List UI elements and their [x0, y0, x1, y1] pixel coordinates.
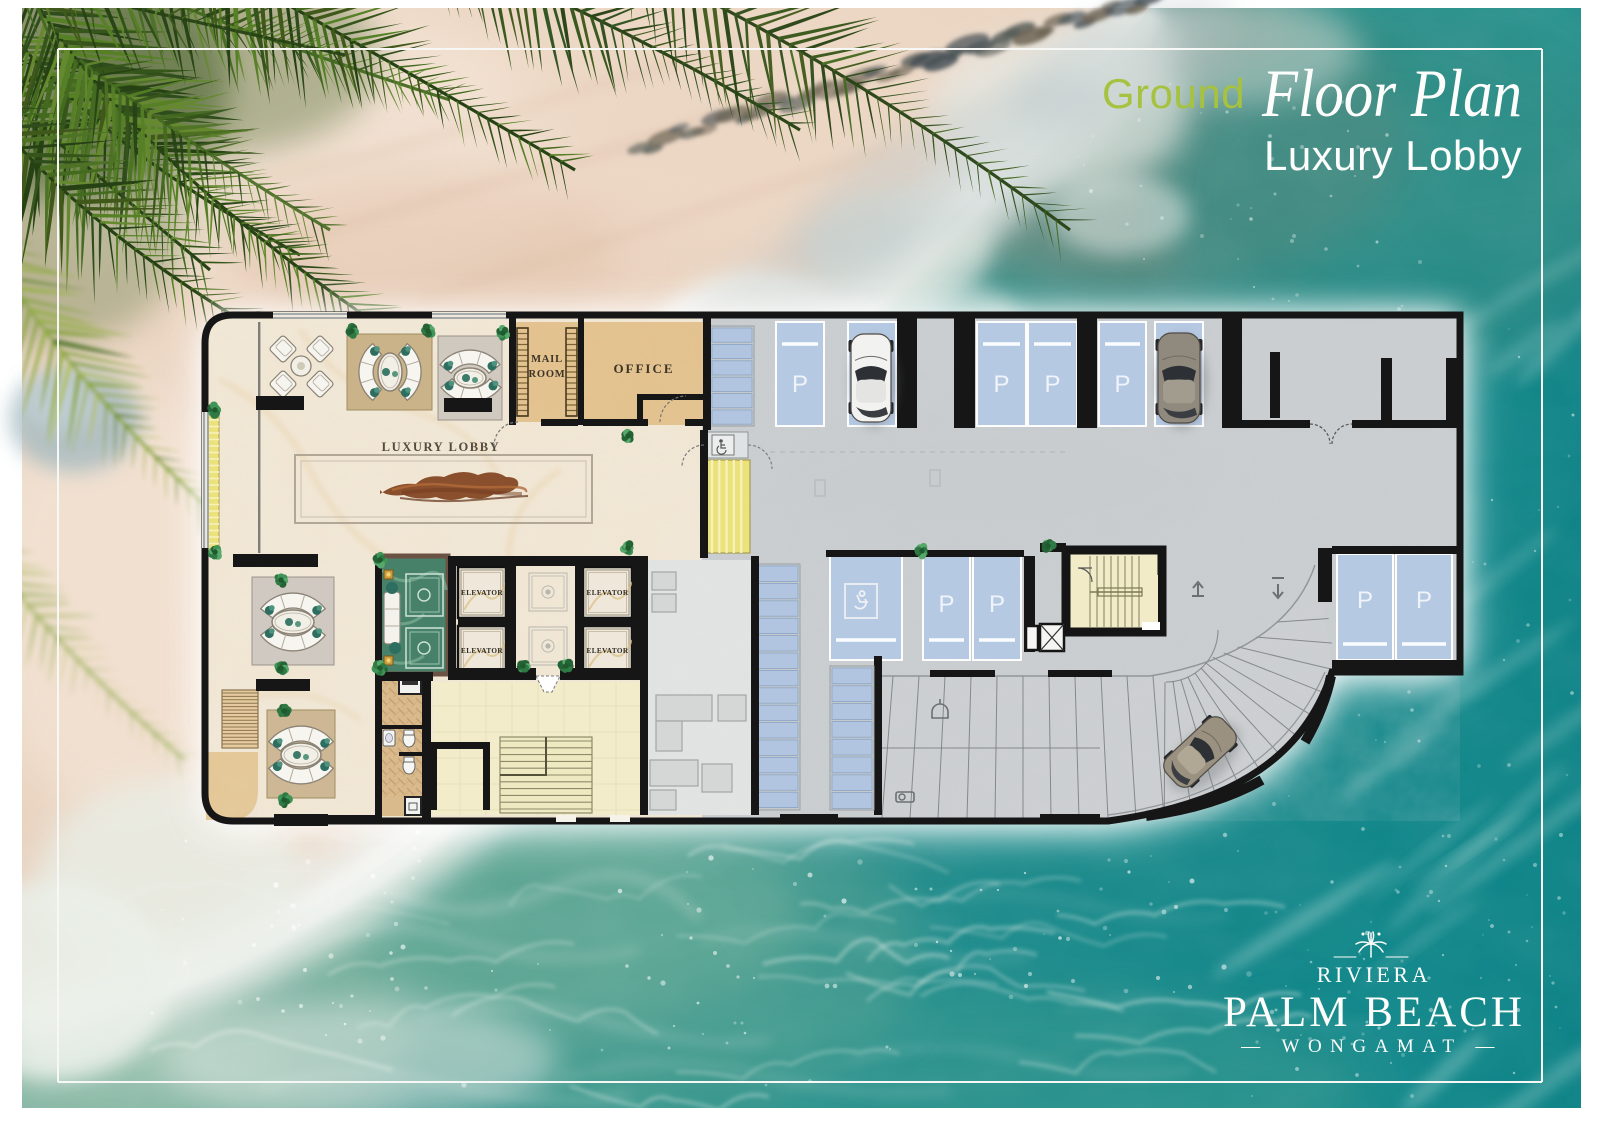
svg-text:PALM BEACH: PALM BEACH [1223, 989, 1525, 1036]
svg-text:P: P [993, 371, 1009, 398]
svg-text:ELEVATOR: ELEVATOR [461, 589, 503, 597]
svg-text:P: P [938, 591, 954, 618]
svg-text:P: P [989, 591, 1005, 618]
svg-text:P: P [792, 371, 808, 398]
svg-text:ELEVATOR: ELEVATOR [587, 589, 629, 597]
svg-text:Floor Plan: Floor Plan [1261, 55, 1522, 131]
svg-text:P: P [1416, 587, 1432, 614]
svg-text:ROOM: ROOM [528, 369, 565, 380]
svg-text:P: P [1044, 371, 1060, 398]
svg-text:Ground: Ground [1102, 70, 1245, 117]
svg-text:LUXURY LOBBY: LUXURY LOBBY [382, 440, 501, 454]
svg-text:ELEVATOR: ELEVATOR [587, 647, 629, 655]
svg-text:— WONGAMAT —: — WONGAMAT — [1240, 1036, 1503, 1057]
svg-text:P: P [1114, 371, 1130, 398]
svg-text:RIVIERA: RIVIERA [1317, 962, 1431, 987]
svg-text:Luxury Lobby: Luxury Lobby [1264, 132, 1522, 179]
svg-text:OFFICE: OFFICE [613, 361, 674, 376]
svg-text:P: P [1357, 587, 1373, 614]
svg-text:ELEVATOR: ELEVATOR [461, 647, 503, 655]
svg-text:MAIL: MAIL [531, 354, 563, 365]
